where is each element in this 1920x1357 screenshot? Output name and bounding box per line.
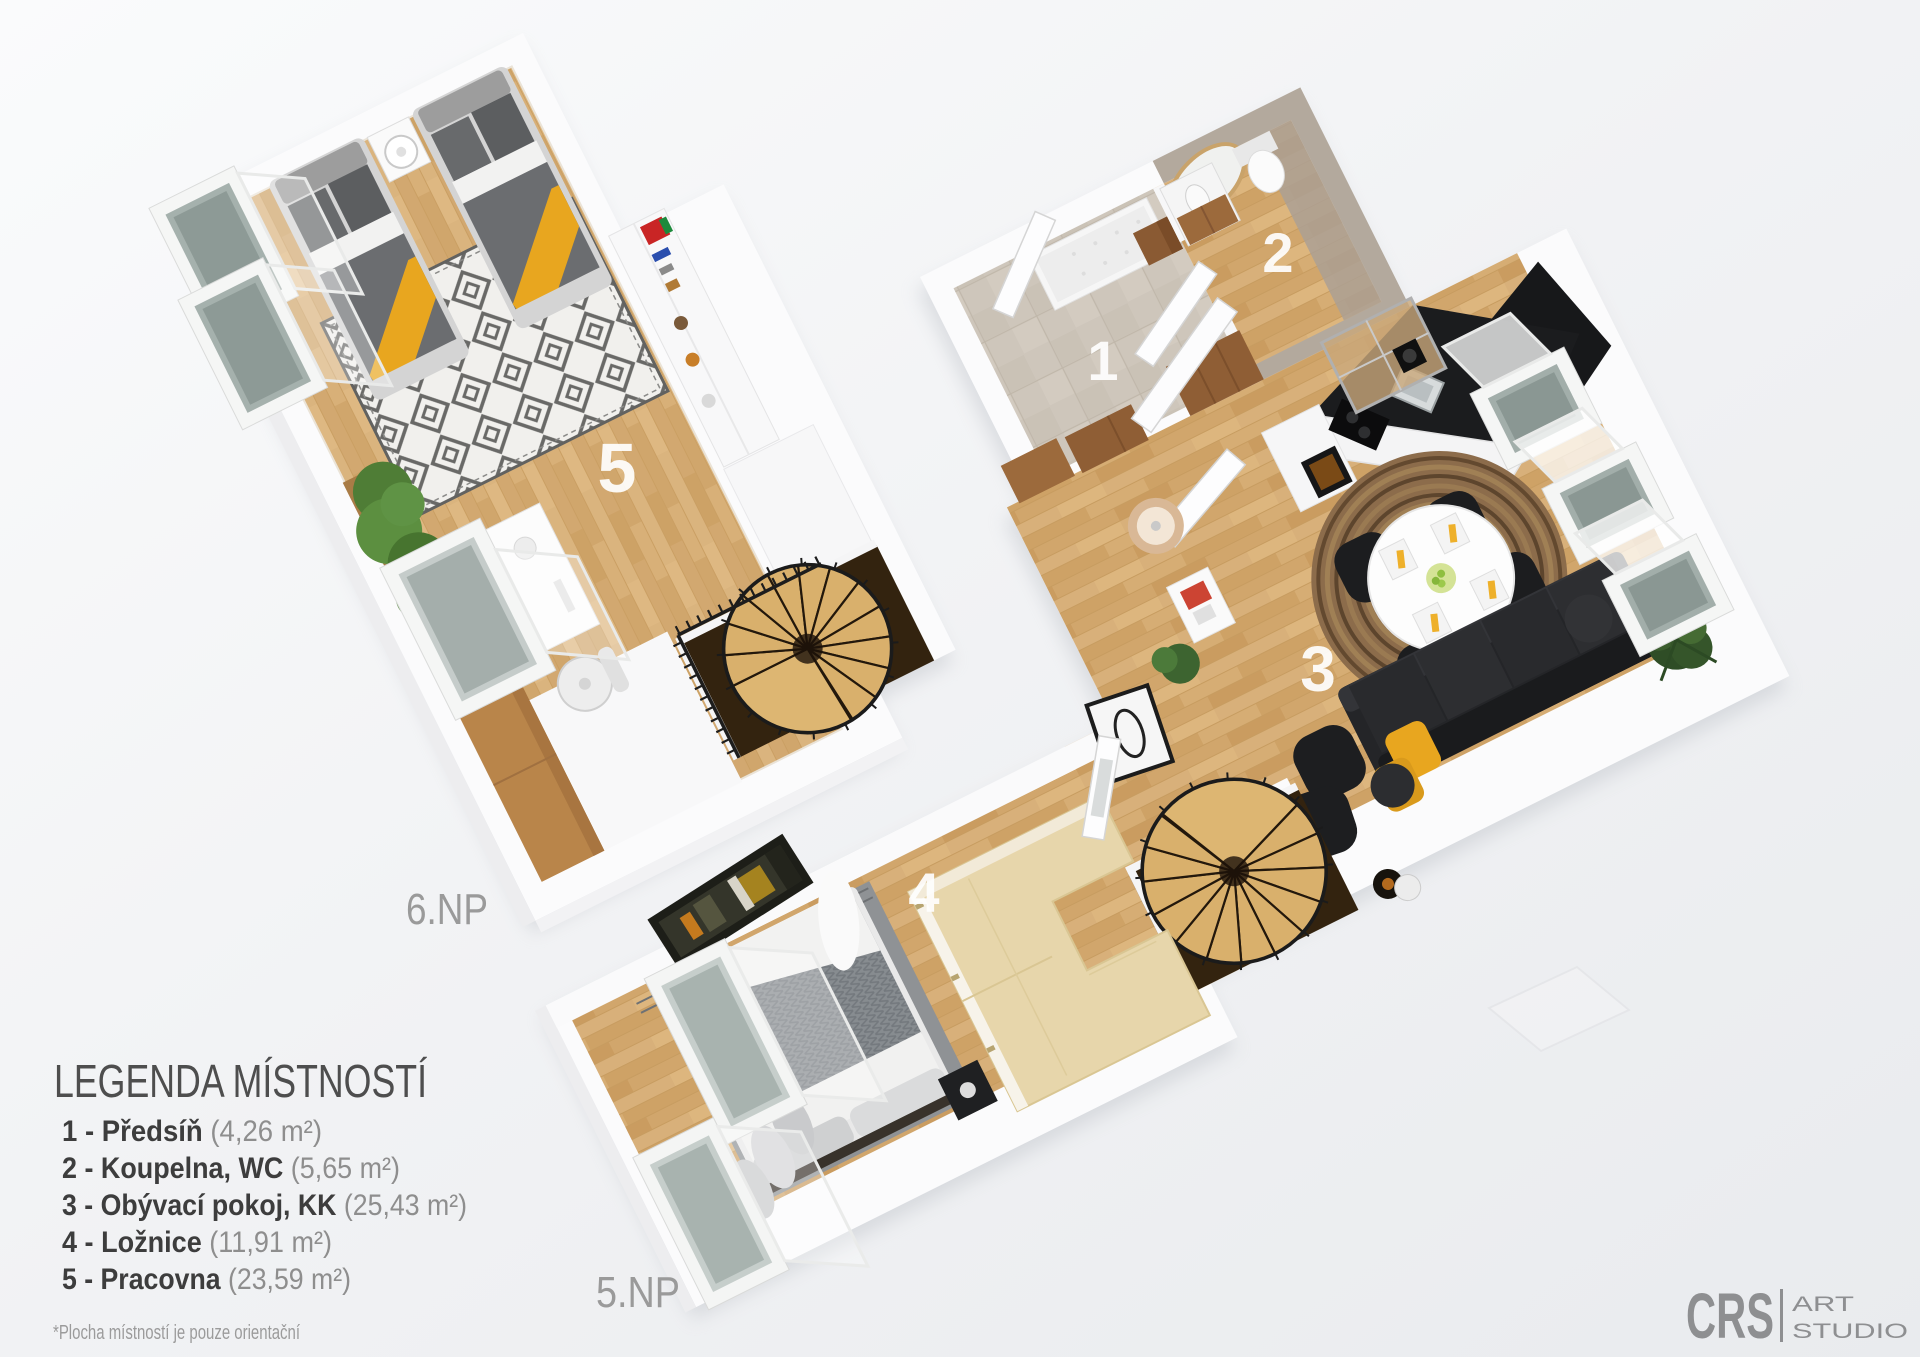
- svg-text:2 - Koupelna, WC (5,65 m²): 2 - Koupelna, WC (5,65 m²): [62, 1152, 400, 1185]
- svg-text:4: 4: [908, 861, 939, 924]
- svg-text:3: 3: [1300, 633, 1336, 705]
- svg-text:2: 2: [1262, 221, 1293, 284]
- svg-text:LEGENDA MÍSTNOSTÍ: LEGENDA MÍSTNOSTÍ: [54, 1055, 427, 1107]
- svg-text:ART: ART: [1792, 1293, 1854, 1316]
- svg-text:1 - Předsíň (4,26 m²): 1 - Předsíň (4,26 m²): [62, 1115, 322, 1148]
- svg-text:5.NP: 5.NP: [596, 1268, 680, 1317]
- svg-text:5: 5: [598, 429, 637, 507]
- svg-text:5 - Pracovna (23,59 m²): 5 - Pracovna (23,59 m²): [62, 1263, 351, 1296]
- svg-text:4 - Ložnice (11,91 m²): 4 - Ložnice (11,91 m²): [62, 1226, 332, 1259]
- svg-text:3 - Obývací pokoj, KK (25,43 m: 3 - Obývací pokoj, KK (25,43 m²): [62, 1189, 467, 1222]
- svg-text:6.NP: 6.NP: [406, 885, 488, 934]
- svg-text:STUDIO: STUDIO: [1792, 1320, 1908, 1343]
- svg-text:1: 1: [1087, 329, 1118, 392]
- svg-text:CRS: CRS: [1686, 1280, 1774, 1352]
- svg-text:*Plocha místností je pouze ori: *Plocha místností je pouze orientační: [53, 1322, 300, 1344]
